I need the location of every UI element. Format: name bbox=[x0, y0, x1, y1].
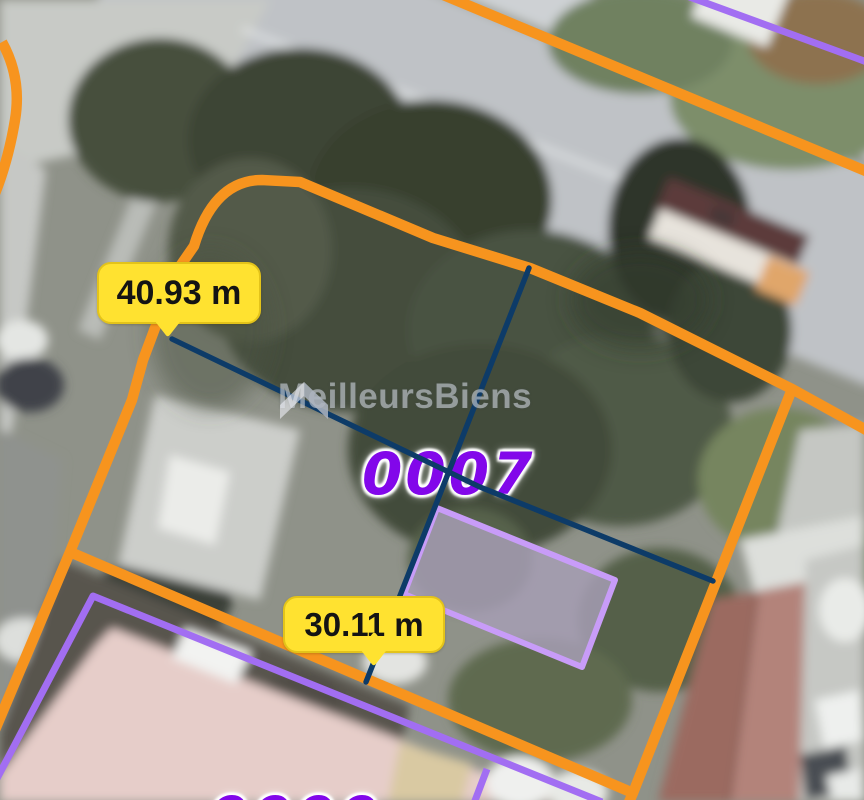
west-parcel-arc bbox=[0, 42, 17, 196]
measurement-value: 30.11 m bbox=[304, 606, 423, 644]
cadastre-overlay bbox=[0, 0, 864, 800]
measurement-badge-depth[interactable]: 30.11 m bbox=[283, 596, 445, 653]
map-canvas[interactable]: 0007 0000 MeilleursBiens bbox=[0, 0, 864, 800]
road-far-boundary bbox=[441, 0, 864, 172]
main-parcel-boundaries bbox=[0, 0, 864, 800]
main-parcel-east-boundary bbox=[629, 389, 792, 800]
parcel-boundary-northeast bbox=[676, 0, 864, 64]
parcel-boundary-south-branch bbox=[473, 769, 487, 800]
measurement-value: 40.93 m bbox=[117, 274, 242, 313]
measurement-badge-width[interactable]: 40.93 m bbox=[97, 262, 261, 324]
